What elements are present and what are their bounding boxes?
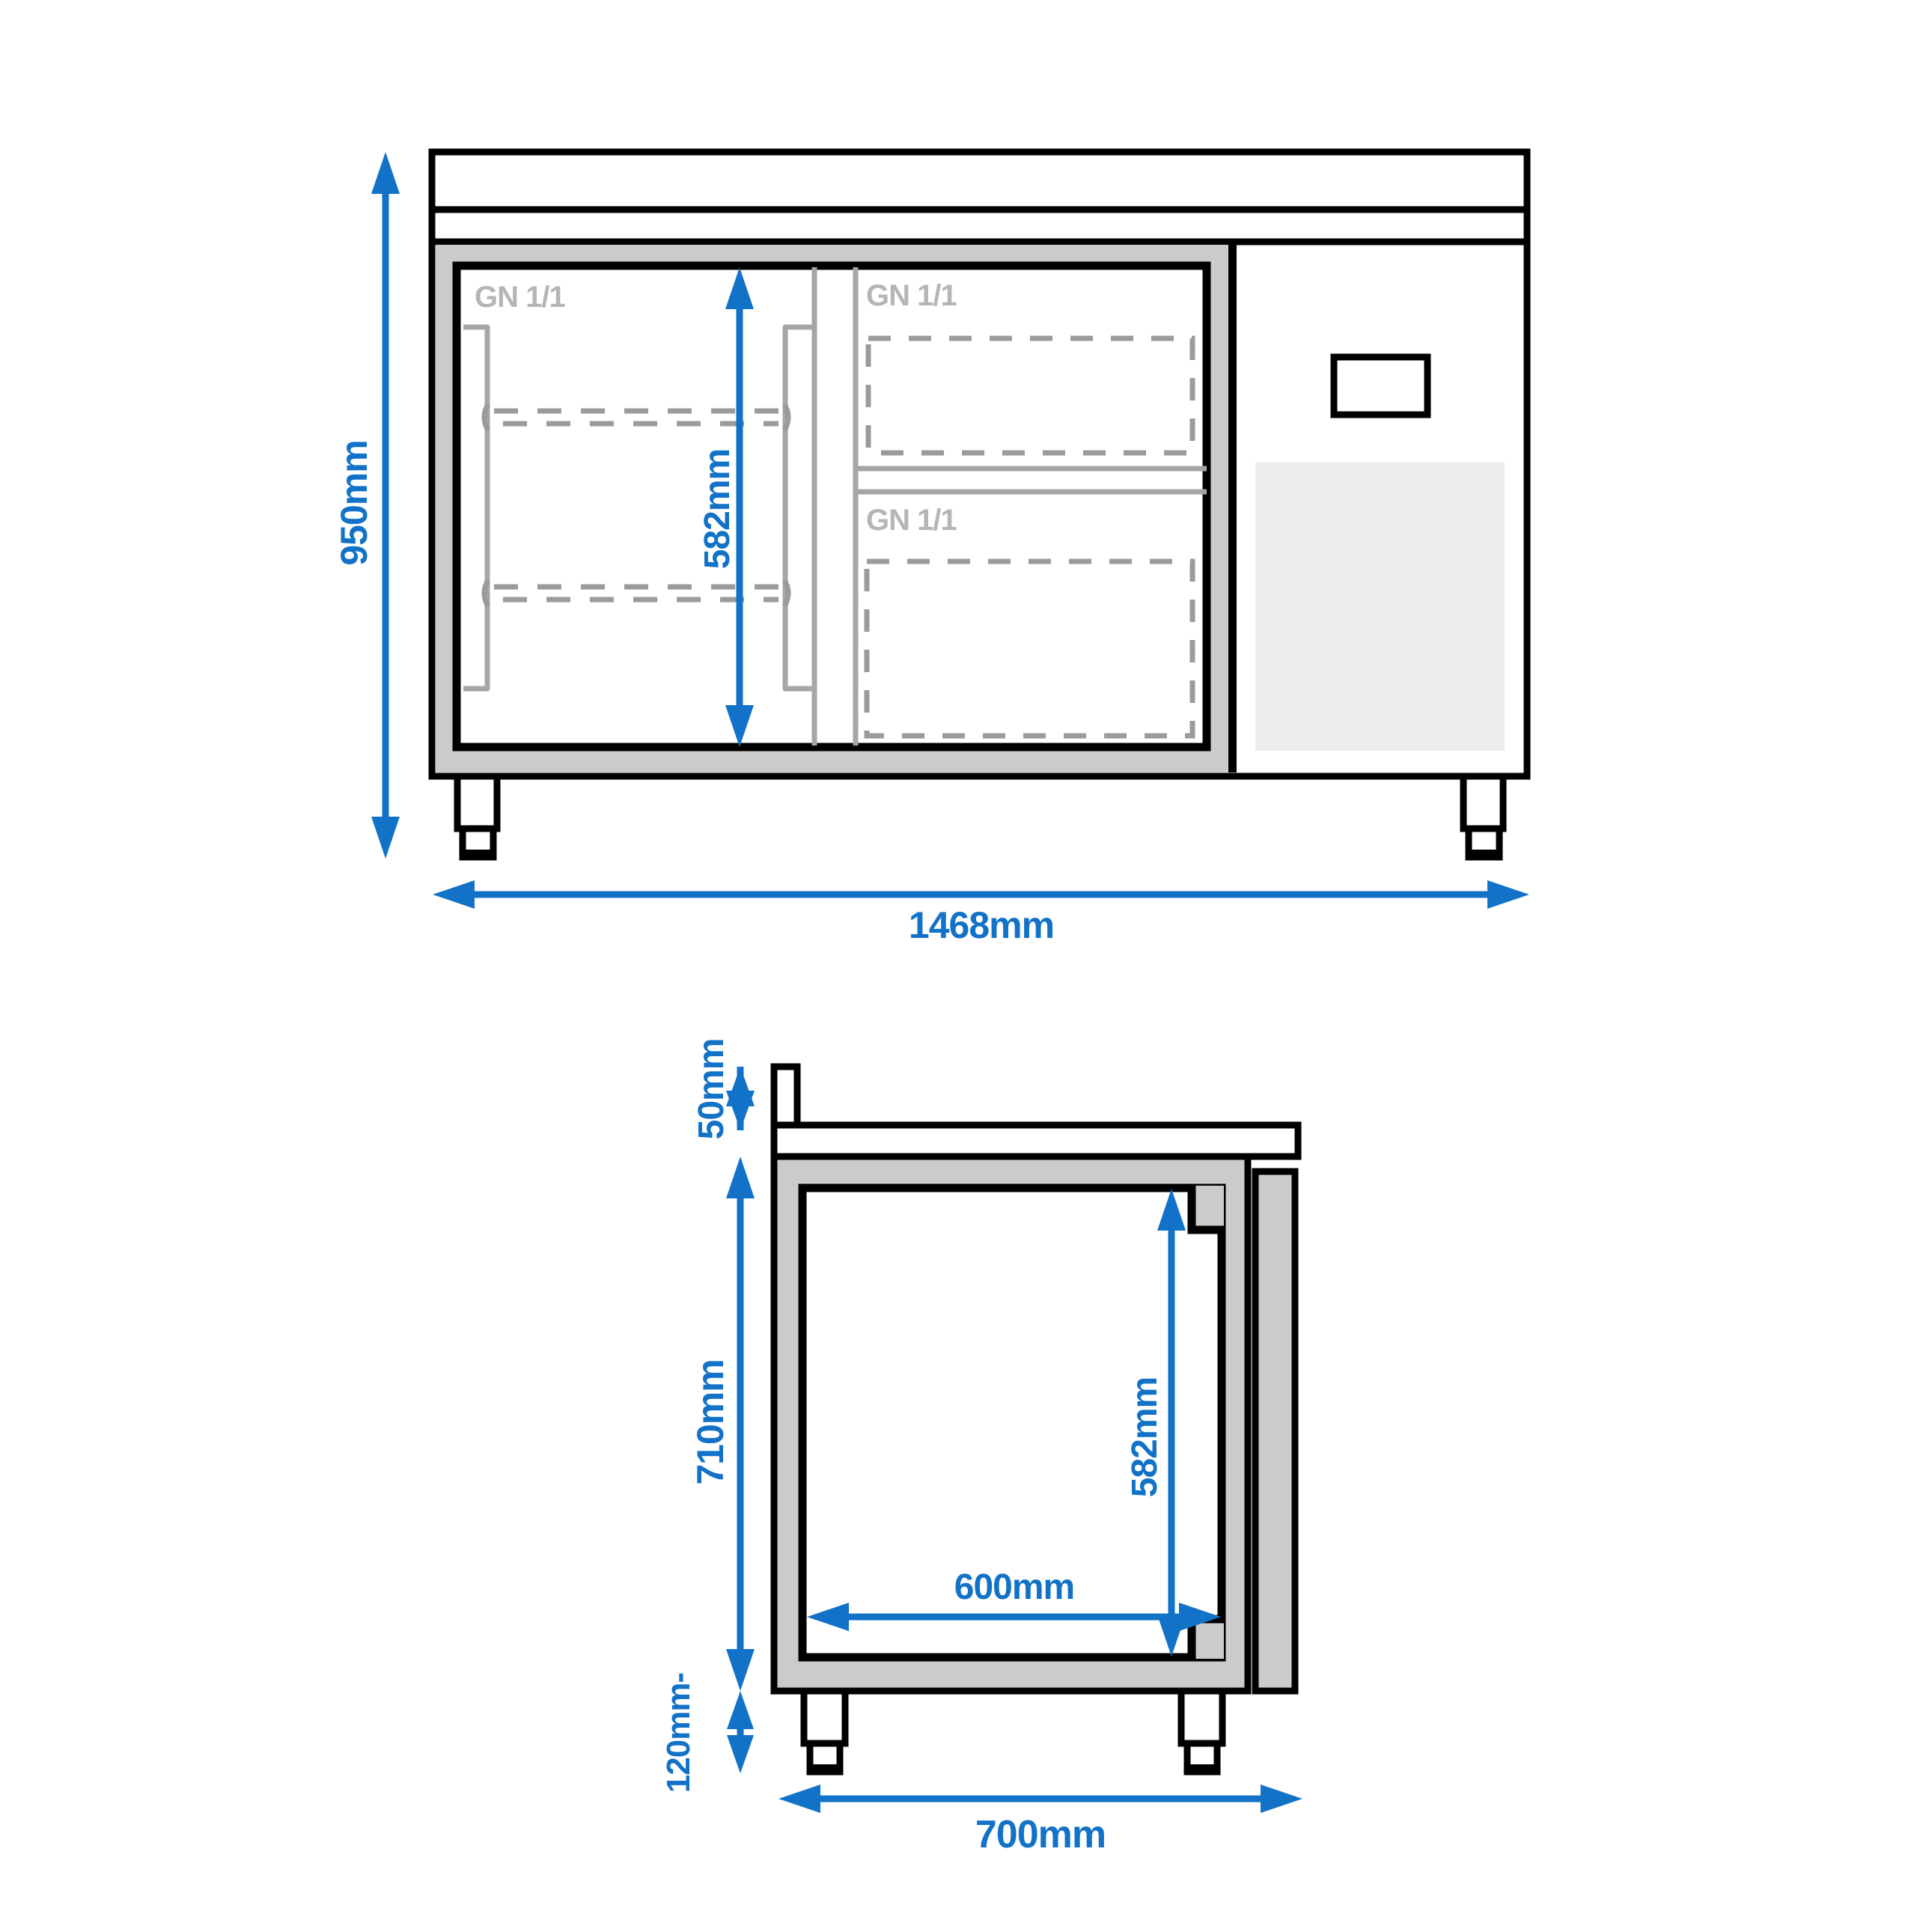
front-right-leg-foot xyxy=(1466,850,1502,859)
body-height-label: 710mm xyxy=(689,1359,731,1484)
overall-width-label: 1468mm xyxy=(909,904,1054,946)
side-rear-leg-foot xyxy=(1184,1764,1220,1773)
arrow-down-icon xyxy=(727,1735,754,1773)
arrow-up-icon xyxy=(371,152,400,194)
side-front-leg-foot xyxy=(807,1764,843,1773)
side-door xyxy=(1255,1171,1295,1691)
arrow-up-icon xyxy=(727,1691,754,1729)
arrow-right-icon xyxy=(1487,880,1529,909)
dim-leg-height: 120mm- 200mm xyxy=(0,1673,754,1932)
arrow-down-icon xyxy=(726,1649,755,1691)
arrow-right-icon xyxy=(1261,1785,1302,1813)
dim-backsplash-height: 50mm xyxy=(692,1039,755,1140)
interior-depth-label: 600mm xyxy=(954,1567,1074,1607)
ventilation-grille xyxy=(1255,462,1505,751)
dim-overall-depth: 700mm xyxy=(778,1785,1302,1856)
front-right-leg-upper xyxy=(1463,776,1503,829)
arrow-up-icon xyxy=(726,1157,755,1198)
side-legs xyxy=(804,1691,1222,1773)
side-rear-leg-upper xyxy=(1181,1691,1222,1743)
front-legs xyxy=(457,776,1503,859)
front-view: GN 1/1 GN 1/1 GN 1/1 950mm 582mm xyxy=(333,152,1529,946)
drawer-bottom-gn-label: GN 1/1 xyxy=(866,504,957,537)
arrow-down-icon xyxy=(371,817,400,859)
front-divider xyxy=(1228,245,1237,773)
dim-overall-width: 1468mm xyxy=(433,880,1529,946)
side-view: 50mm 710mm 582mm 600mm 120mm xyxy=(0,1039,1302,1932)
side-worktop xyxy=(774,1125,1298,1157)
side-front-leg-upper xyxy=(804,1691,845,1743)
drawer-top-gn-label: GN 1/1 xyxy=(866,279,957,312)
overall-depth-label: 700mm xyxy=(975,1813,1106,1856)
dim-body-height: 710mm xyxy=(689,1157,755,1691)
front-worktop xyxy=(432,210,1527,242)
side-bottom-step-fill xyxy=(1192,1621,1224,1659)
door-gn-label: GN 1/1 xyxy=(475,281,565,314)
leg-height-label-line1: 120mm- xyxy=(660,1673,697,1793)
arrow-left-icon xyxy=(778,1785,820,1813)
arrow-left-icon xyxy=(433,880,475,909)
front-backsplash xyxy=(432,152,1527,210)
interior-height-side-label: 582mm xyxy=(1125,1377,1165,1497)
front-interior xyxy=(457,266,1207,747)
interior-height-front-label: 582mm xyxy=(698,449,737,569)
side-top-step-fill xyxy=(1192,1186,1224,1229)
control-panel xyxy=(1334,357,1427,415)
side-backsplash xyxy=(774,1067,797,1128)
technical-drawing-page: GN 1/1 GN 1/1 GN 1/1 950mm 582mm xyxy=(0,0,1932,1932)
refrigerated-counter-drawing: GN 1/1 GN 1/1 GN 1/1 950mm 582mm xyxy=(0,0,1932,1932)
overall-height-label: 950mm xyxy=(333,440,375,565)
backsplash-height-label: 50mm xyxy=(692,1039,731,1140)
dim-overall-height: 950mm xyxy=(333,152,400,859)
front-left-leg-upper xyxy=(457,776,497,829)
front-left-leg-foot xyxy=(460,850,496,859)
